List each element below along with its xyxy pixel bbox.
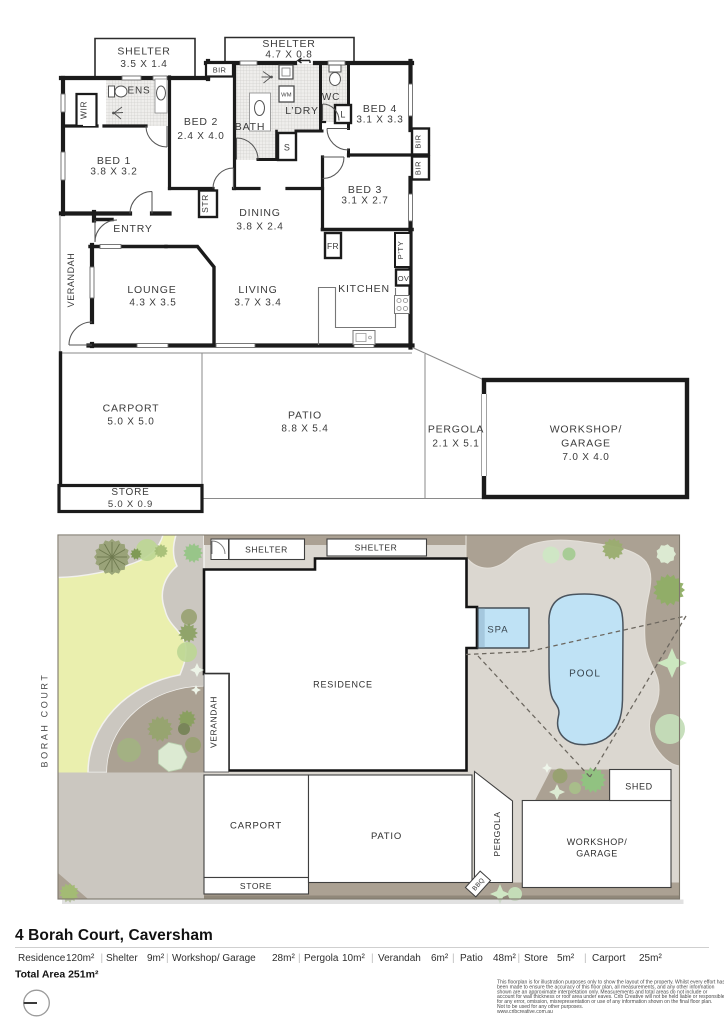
- svg-text:BED 1: BED 1: [97, 155, 131, 167]
- svg-text:BED 2: BED 2: [184, 116, 218, 128]
- svg-text:FR: FR: [327, 241, 339, 251]
- svg-text:PATIO: PATIO: [371, 831, 402, 842]
- svg-text:STORE: STORE: [240, 881, 272, 891]
- svg-text:120m²: 120m²: [66, 953, 95, 964]
- svg-text:PERGOLA: PERGOLA: [492, 811, 502, 856]
- svg-text:8.8 X 5.4: 8.8 X 5.4: [281, 424, 328, 435]
- svg-text:S: S: [284, 143, 290, 153]
- svg-text:SHED: SHED: [625, 782, 652, 792]
- svg-text:Shelter: Shelter: [106, 953, 138, 964]
- svg-text:6m²: 6m²: [431, 953, 449, 964]
- svg-text:POOL: POOL: [569, 669, 601, 680]
- svg-text:WORKSHOP/: WORKSHOP/: [550, 424, 623, 436]
- svg-text:Store: Store: [524, 953, 548, 964]
- svg-text:ENTRY: ENTRY: [113, 223, 152, 235]
- svg-text:GARAGE: GARAGE: [561, 438, 611, 450]
- svg-text:L: L: [340, 110, 345, 120]
- svg-text:Total Area 251m²: Total Area 251m²: [15, 969, 99, 981]
- svg-text:Patio: Patio: [460, 953, 483, 964]
- svg-text:28m²: 28m²: [272, 953, 295, 964]
- svg-text:48m²: 48m²: [493, 953, 516, 964]
- svg-text:4.7 X 0.8: 4.7 X 0.8: [265, 50, 312, 61]
- svg-text:OV: OV: [398, 274, 409, 283]
- svg-text:|: |: [584, 953, 587, 964]
- svg-text:WIR: WIR: [79, 101, 89, 119]
- svg-text:2.4 X 4.0: 2.4 X 4.0: [177, 131, 224, 142]
- svg-text:SHELTER: SHELTER: [355, 543, 398, 553]
- svg-text:10m²: 10m²: [342, 953, 365, 964]
- svg-text:LOUNGE: LOUNGE: [127, 284, 176, 296]
- svg-text:2.1 X 5.1: 2.1 X 5.1: [432, 439, 479, 450]
- svg-text:7.0 X 4.0: 7.0 X 4.0: [562, 452, 609, 463]
- svg-text:BED 4: BED 4: [363, 103, 397, 115]
- svg-text:3.1 X 2.7: 3.1 X 2.7: [341, 196, 388, 207]
- svg-text:3.1 X 3.3: 3.1 X 3.3: [356, 115, 403, 126]
- svg-text:www.cribcreative.com.au: www.cribcreative.com.au: [497, 1009, 553, 1015]
- svg-text:|: |: [518, 953, 521, 964]
- svg-text:3.5 X 1.4: 3.5 X 1.4: [120, 59, 167, 70]
- svg-text:CARPORT: CARPORT: [230, 821, 282, 832]
- svg-text:STR: STR: [200, 194, 210, 213]
- svg-text:SPA: SPA: [487, 625, 508, 636]
- svg-text:SHELTER: SHELTER: [245, 545, 288, 555]
- svg-text:WC: WC: [322, 92, 340, 103]
- svg-text:5m²: 5m²: [557, 953, 575, 964]
- svg-text:DINING: DINING: [239, 207, 281, 219]
- svg-text:RESIDENCE: RESIDENCE: [313, 680, 373, 690]
- svg-text:CARPORT: CARPORT: [103, 403, 160, 415]
- svg-text:|: |: [371, 953, 374, 964]
- svg-text:9m²: 9m²: [147, 953, 165, 964]
- svg-text:KITCHEN: KITCHEN: [338, 283, 390, 295]
- svg-text:4 Borah Court, Caversham: 4 Borah Court, Caversham: [15, 927, 213, 944]
- svg-text:PERGOLA: PERGOLA: [428, 424, 484, 436]
- svg-text:L’DRY: L’DRY: [285, 105, 319, 117]
- svg-text:SHELTER: SHELTER: [117, 46, 170, 58]
- svg-text:Carport: Carport: [592, 953, 626, 964]
- svg-text:3.8 X 2.4: 3.8 X 2.4: [236, 222, 283, 233]
- svg-text:ENS: ENS: [128, 86, 151, 97]
- svg-text:WORKSHOP/: WORKSHOP/: [567, 837, 628, 847]
- svg-text:25m²: 25m²: [639, 953, 662, 964]
- svg-text:4.3 X 3.5: 4.3 X 3.5: [129, 298, 176, 309]
- svg-text:P’TY: P’TY: [396, 241, 405, 260]
- svg-text:BIR: BIR: [414, 134, 423, 148]
- svg-text:3.8 X 3.2: 3.8 X 3.2: [90, 167, 137, 178]
- svg-text:BIR: BIR: [213, 66, 227, 75]
- svg-text:Verandah: Verandah: [378, 953, 421, 964]
- svg-text:|: |: [101, 953, 104, 964]
- svg-text:BORAH COURT: BORAH COURT: [40, 673, 50, 768]
- svg-text:5.0 X 0.9: 5.0 X 0.9: [108, 499, 153, 510]
- svg-text:VERANDAH: VERANDAH: [209, 696, 219, 748]
- svg-text:|: |: [166, 953, 169, 964]
- svg-text:Residence: Residence: [18, 953, 66, 964]
- svg-text:STORE: STORE: [111, 487, 149, 498]
- svg-text:BIR: BIR: [414, 161, 423, 175]
- svg-text:BATH: BATH: [235, 121, 265, 133]
- svg-text:|: |: [298, 953, 301, 964]
- svg-text:GARAGE: GARAGE: [576, 849, 618, 859]
- svg-text:SHELTER: SHELTER: [262, 38, 315, 50]
- svg-text:|: |: [452, 953, 455, 964]
- svg-text:PATIO: PATIO: [288, 410, 322, 422]
- svg-text:WM: WM: [281, 93, 292, 99]
- svg-text:3.7 X 3.4: 3.7 X 3.4: [234, 298, 281, 309]
- svg-text:VERANDAH: VERANDAH: [66, 253, 76, 308]
- svg-text:Workshop/ Garage: Workshop/ Garage: [172, 953, 256, 964]
- svg-text:BED 3: BED 3: [348, 184, 382, 196]
- svg-text:Pergola: Pergola: [304, 953, 339, 964]
- svg-text:LIVING: LIVING: [238, 284, 277, 296]
- svg-text:5.0 X 5.0: 5.0 X 5.0: [107, 417, 154, 428]
